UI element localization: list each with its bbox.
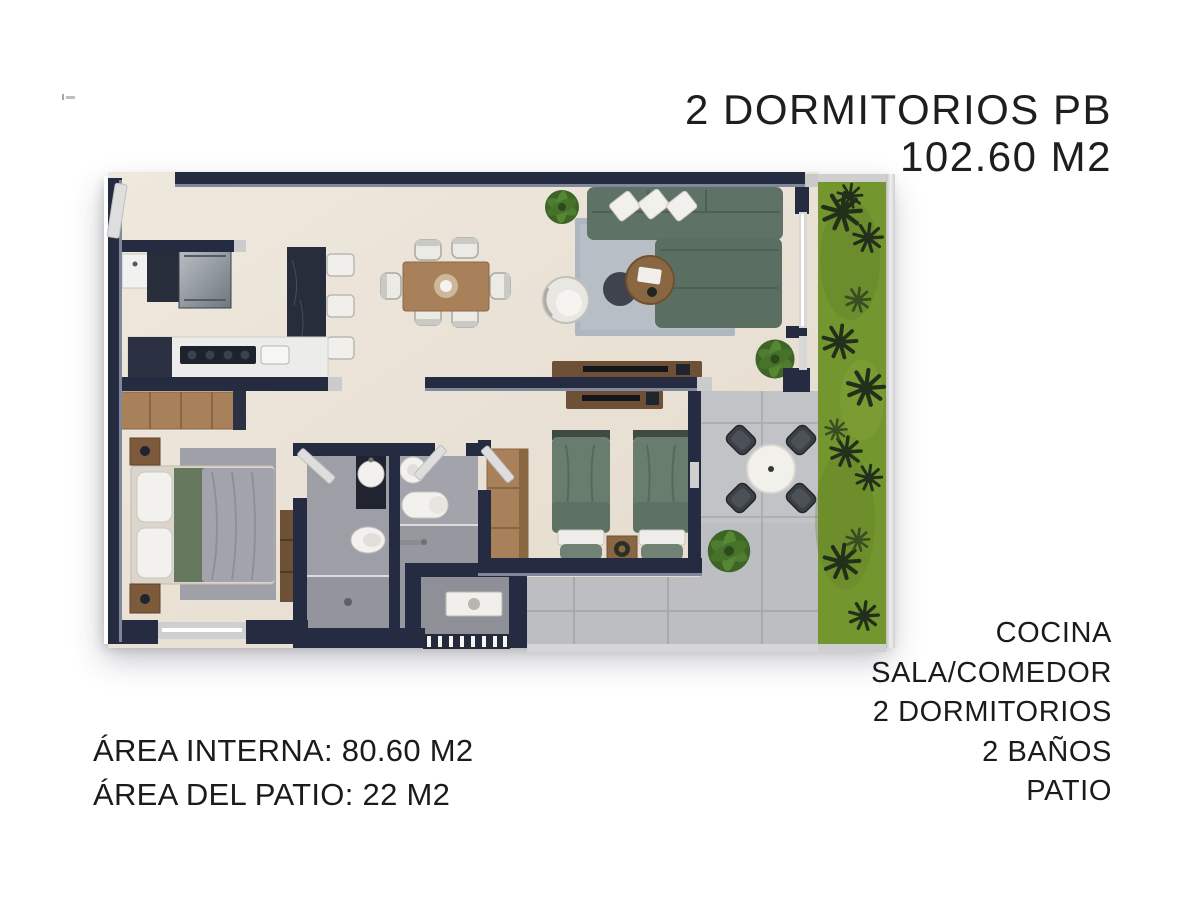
area-stats: ÁREA INTERNA: 80.60 M2 ÁREA DEL PATIO: 2…: [93, 729, 473, 817]
coffee-table: [626, 256, 674, 304]
area-interna: ÁREA INTERNA: 80.60 M2: [93, 729, 473, 773]
twin-bed-1: [552, 430, 610, 560]
armchair: [543, 277, 589, 323]
utility-room: [446, 592, 502, 616]
shower-fixture: [398, 540, 422, 545]
kitchen-cabinet: [147, 252, 179, 302]
bathroom-1: [351, 449, 386, 553]
area-patio: ÁREA DEL PATIO: 22 M2: [93, 773, 473, 817]
feature-list: COCINA SALA/COMEDOR 2 DORMITORIOS 2 BAÑO…: [871, 614, 1112, 812]
feature-cocina: COCINA: [871, 614, 1112, 654]
floor-plan: [95, 166, 901, 658]
bedroom2-window: [690, 462, 699, 488]
twin-bed-2: [633, 430, 691, 560]
bed-king: [131, 466, 274, 584]
tv-console-living: [552, 361, 702, 378]
garden-curb: [886, 174, 895, 648]
kitchen-sink: [261, 346, 289, 364]
feature-sala: SALA/COMEDOR: [871, 654, 1112, 694]
kitchen-mini-counter: [122, 254, 148, 288]
title-line-1: 2 DORMITORIOS PB: [685, 86, 1112, 133]
wardrobe-bedroom1: [118, 390, 246, 430]
bar-stools: [327, 254, 354, 359]
console-bedroom2: [566, 390, 663, 409]
corner-mark: [62, 94, 78, 101]
feature-dormitorios: 2 DORMITORIOS: [871, 693, 1112, 733]
flyer-page: 2 DORMITORIOS PB 102.60 M2 ÁREA INTERNA:…: [0, 0, 1200, 900]
feature-banos: 2 BAÑOS: [871, 733, 1112, 773]
patio-plant: [708, 530, 751, 573]
utility-grate: [423, 634, 510, 649]
feature-patio: PATIO: [871, 772, 1112, 812]
plant-living-1: [545, 190, 579, 224]
